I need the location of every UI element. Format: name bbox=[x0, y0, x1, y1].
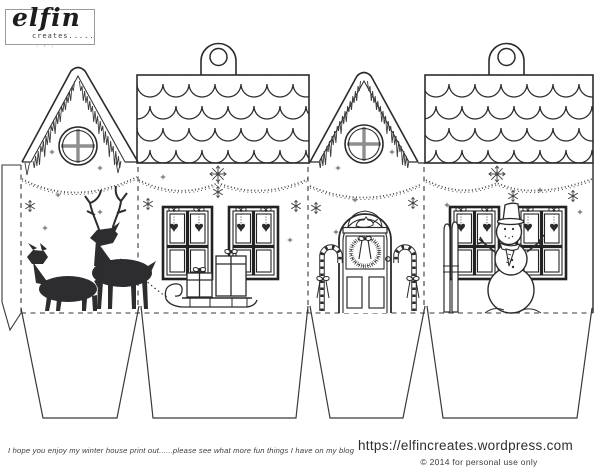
sparkle-mark bbox=[578, 210, 583, 215]
snowflake-icon bbox=[291, 201, 301, 212]
blog-url: https://elfincreates.wordpress.com bbox=[358, 438, 594, 453]
snowflake-icon bbox=[311, 203, 321, 214]
bottom-flap-1 bbox=[21, 306, 139, 418]
candy-cane-left bbox=[317, 247, 340, 311]
snowflake-icon bbox=[213, 187, 223, 198]
bottom-flaps bbox=[21, 306, 592, 418]
sparkle-mark bbox=[161, 175, 166, 180]
sparkle-mark bbox=[353, 198, 358, 203]
snowflake-icon bbox=[143, 199, 153, 210]
wall-panel-snowman bbox=[426, 166, 592, 313]
snowflake-icon bbox=[25, 201, 35, 212]
stitched-garland bbox=[139, 179, 308, 191]
candy-cane-right bbox=[396, 247, 419, 311]
sparkle-mark bbox=[334, 230, 339, 235]
glue-tab-left bbox=[2, 165, 21, 330]
stitched-garland bbox=[22, 177, 137, 193]
sparkle-mark bbox=[445, 203, 450, 208]
stitched-garland bbox=[426, 179, 592, 191]
sparkle-mark bbox=[98, 166, 103, 171]
logo-ornament: · ◦ · bbox=[36, 44, 55, 50]
winter-house-template-artwork bbox=[0, 0, 600, 474]
stitched-garland bbox=[310, 184, 422, 198]
gable-panel-left bbox=[22, 68, 138, 176]
snowflake-icon bbox=[408, 198, 418, 209]
sparkle-mark bbox=[336, 166, 341, 171]
scalloped-roof-left bbox=[137, 44, 309, 164]
sparkle-mark bbox=[538, 188, 543, 193]
bottom-flap-4 bbox=[427, 306, 592, 418]
snowflake-icon bbox=[210, 166, 226, 182]
bottom-flap-2 bbox=[141, 306, 308, 418]
tab-hole-icon bbox=[210, 49, 227, 66]
wall-panel-reindeer bbox=[22, 177, 167, 311]
wall-panel-door bbox=[310, 184, 422, 313]
tab-hole-icon bbox=[498, 49, 515, 66]
snowflake-icon bbox=[489, 166, 505, 182]
copyright-notice: © 2014 for personal use only bbox=[370, 457, 588, 467]
sparkle-mark bbox=[98, 210, 103, 215]
sparkle-mark bbox=[43, 226, 48, 231]
wall-panel-sleigh bbox=[139, 166, 308, 307]
snowflake-icon bbox=[508, 191, 518, 202]
sparkle-mark bbox=[288, 238, 293, 243]
reindeer-illustration bbox=[27, 186, 156, 311]
logo-box: elfin creates..... bbox=[5, 9, 95, 45]
gable-panel-door bbox=[309, 73, 425, 171]
scalloped-roof-right bbox=[425, 44, 593, 164]
footer-message: I hope you enjoy my winter house print o… bbox=[8, 446, 358, 455]
bottom-flap-3 bbox=[310, 306, 425, 418]
printable-sheet: elfin creates..... · ◦ · I hope you enjo… bbox=[0, 0, 600, 474]
logo-wordmark: elfin bbox=[12, 3, 81, 32]
round-window-door-gable bbox=[345, 125, 383, 163]
round-window-left bbox=[59, 127, 97, 165]
snowflake-icon bbox=[568, 191, 578, 202]
logo-tagline: creates..... bbox=[32, 32, 95, 40]
front-door bbox=[339, 211, 391, 313]
